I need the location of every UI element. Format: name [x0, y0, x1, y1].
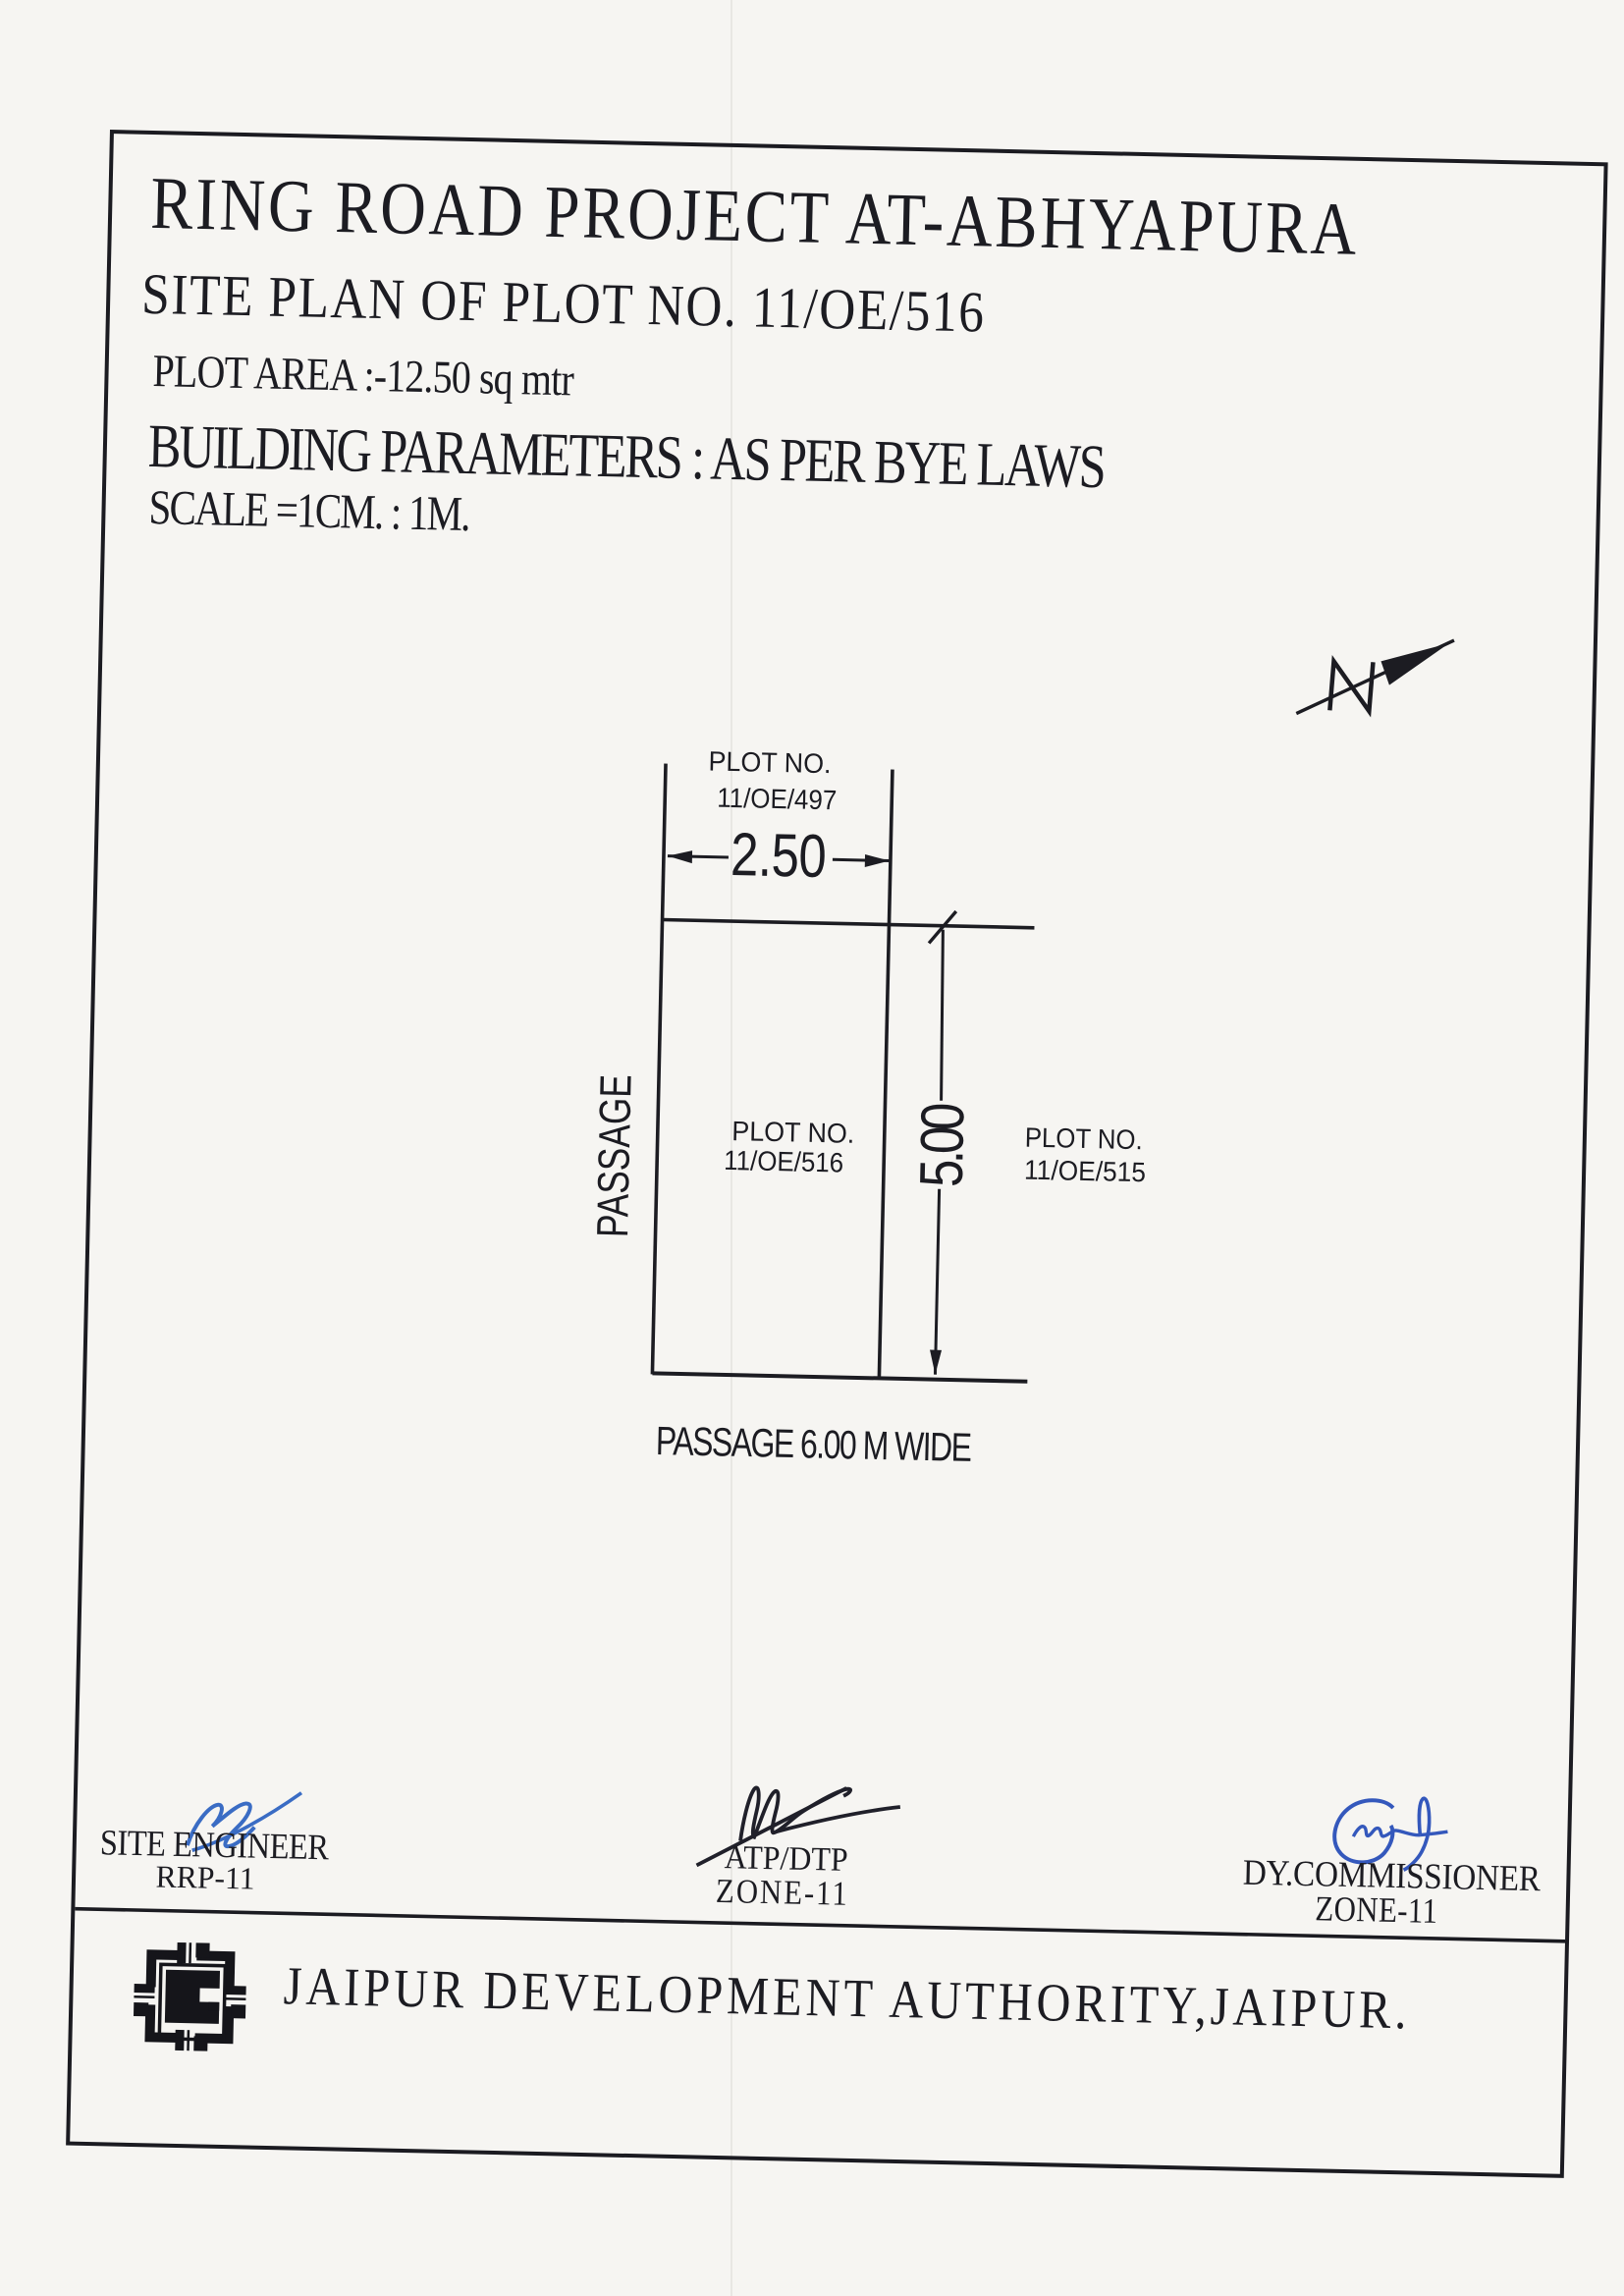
- svg-text:11/OE/497: 11/OE/497: [717, 783, 838, 816]
- svg-text:PLOT NO.: PLOT NO.: [708, 745, 832, 779]
- svg-text:PASSAGE: PASSAGE: [587, 1074, 641, 1238]
- svg-text:PLOT AREA :-12.50 sq mtr: PLOT AREA :-12.50 sq mtr: [152, 346, 575, 406]
- svg-text:RRP-11: RRP-11: [155, 1858, 255, 1895]
- svg-text:PLOT NO.: PLOT NO.: [1024, 1122, 1143, 1156]
- svg-text:SCALE =1CM. : 1M.: SCALE =1CM. : 1M.: [148, 479, 471, 541]
- svg-text:ZONE-11: ZONE-11: [1315, 1889, 1438, 1931]
- svg-text:ZONE-11: ZONE-11: [716, 1873, 848, 1913]
- svg-text:JAIPUR DEVELOPMENT AUTHORITY: JAIPUR DEVELOPMENT AUTHORITY,JAIPUR.: [283, 1957, 1407, 2042]
- svg-text:5.00: 5.00: [908, 1102, 978, 1188]
- svg-text:PLOT NO.: PLOT NO.: [731, 1116, 855, 1149]
- svg-text:PASSAGE 6.00 M WIDE: PASSAGE 6.00 M WIDE: [655, 1418, 972, 1470]
- svg-text:11/OE/516: 11/OE/516: [724, 1145, 844, 1178]
- svg-text:SITE PLAN OF PLOT NO. 11/OE/51: SITE PLAN OF PLOT NO. 11/OE/516: [141, 261, 985, 344]
- svg-text:11/OE/515: 11/OE/515: [1024, 1155, 1147, 1188]
- svg-text:2.50: 2.50: [730, 821, 827, 891]
- svg-text:RING ROAD PROJECT AT-ABHYAPURA: RING ROAD PROJECT AT-ABHYAPURA: [149, 162, 1357, 271]
